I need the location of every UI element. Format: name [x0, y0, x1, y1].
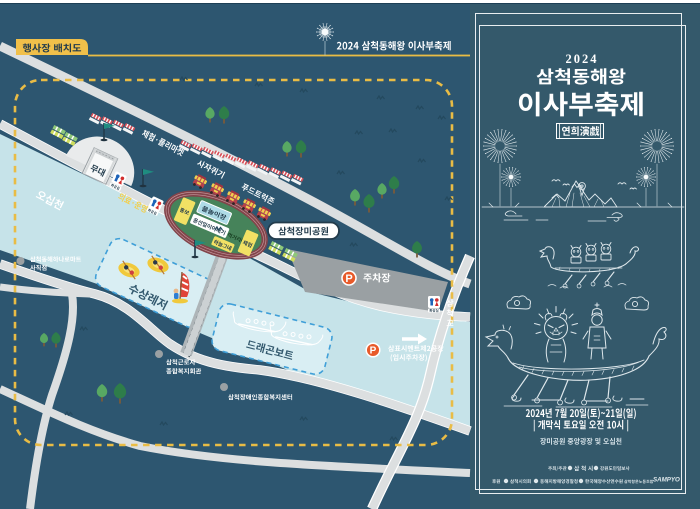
svg-text:P: P [345, 273, 352, 285]
svg-text:SAMPYO: SAMPYO [653, 477, 680, 484]
svg-text:P: P [370, 346, 377, 357]
svg-text:2024: 2024 [566, 52, 599, 66]
